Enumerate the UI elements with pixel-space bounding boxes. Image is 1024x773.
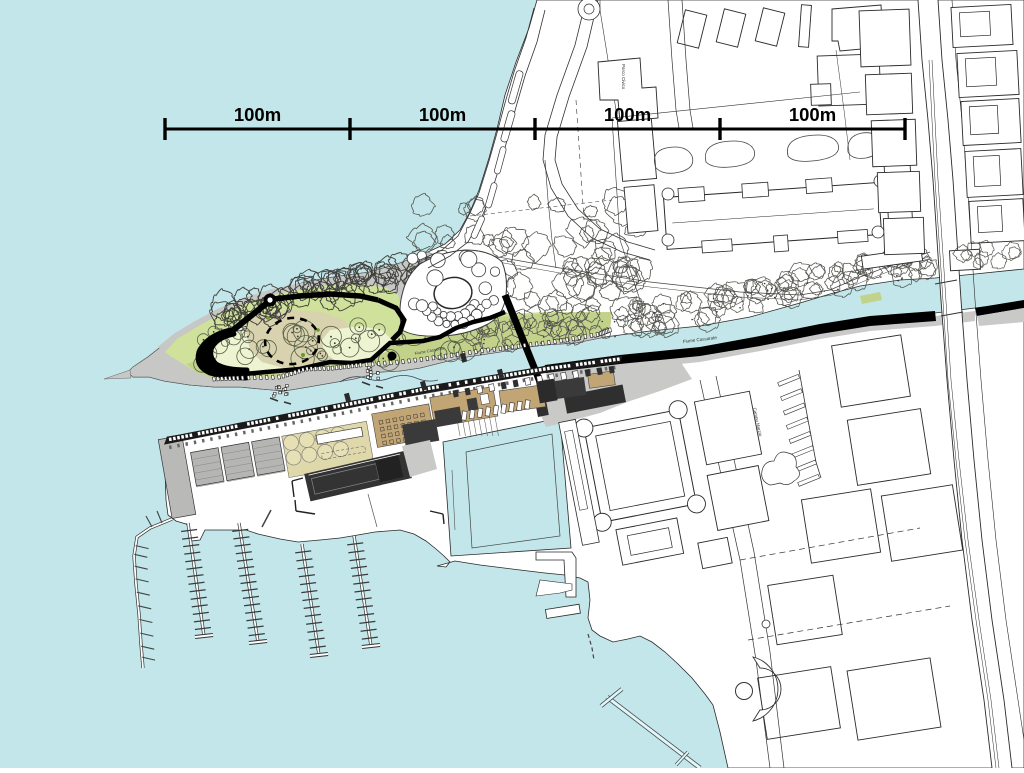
svg-text:100m: 100m <box>234 104 281 125</box>
svg-text:Parco Civico: Parco Civico <box>621 64 626 90</box>
svg-text:100m: 100m <box>789 104 836 125</box>
svg-text:100m: 100m <box>419 104 466 125</box>
svg-text:100m: 100m <box>604 104 651 125</box>
